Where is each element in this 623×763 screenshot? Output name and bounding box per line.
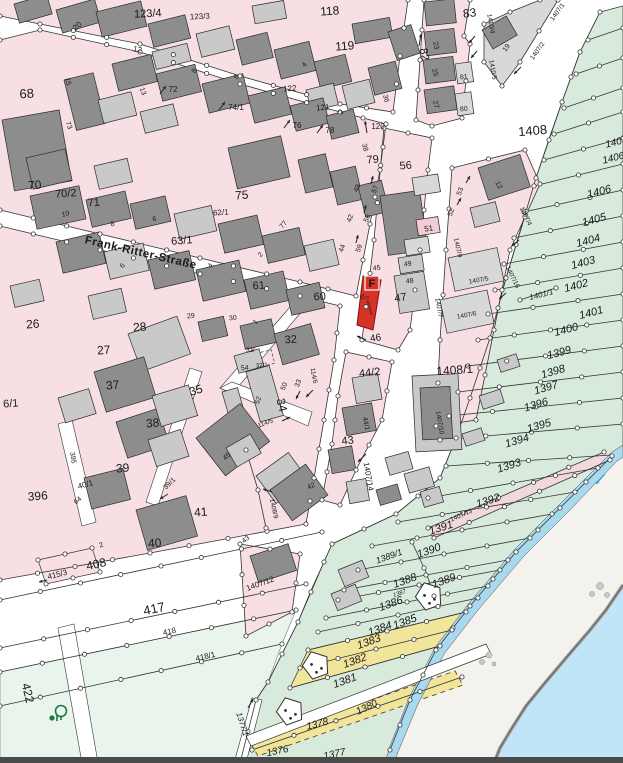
parcel-label: 30 [229, 315, 237, 323]
parcel-label: 44/2 [358, 366, 381, 380]
parcel-label: 60 [313, 291, 326, 304]
parcel-label: 32/1 [256, 362, 269, 369]
parcel-label: 119 [335, 38, 355, 53]
parcel-label: 61 [252, 280, 265, 293]
parcel-label: 62/1 [213, 207, 230, 217]
parcel-label: 29 [187, 313, 195, 321]
parcel-label: 121 [316, 102, 331, 112]
parcel-label: 45 [372, 264, 381, 272]
parcel-label: 70 [28, 178, 43, 193]
parcel-label: 68 [19, 86, 34, 102]
gravel-icon [480, 660, 485, 665]
parcel-label: 47 [394, 291, 408, 305]
parcel-label: 70/2 [55, 187, 77, 200]
parcel-label: 43 [341, 434, 354, 447]
parcel-label: 63/1 [171, 234, 193, 247]
parcel-label: 123/4 [134, 7, 162, 20]
parcel-label: 41 [194, 505, 209, 520]
parcel-label: 1408 [518, 122, 548, 139]
parcel-label: 82 [417, 47, 431, 61]
parcel-label: 40 [148, 536, 163, 551]
gravel-icon [486, 652, 492, 658]
parcel-label: 26 [26, 317, 41, 332]
parcel-label: 76 [293, 121, 302, 130]
parcel-label: 1408/1 [436, 362, 474, 379]
parcel-label: 51 [424, 223, 435, 233]
parcel-label: 71 [87, 197, 100, 210]
scan-edge [0, 757, 623, 763]
gravel-icon [605, 593, 610, 598]
parcel-label: 46 [369, 332, 382, 345]
parcel-label: 79 [366, 154, 379, 167]
parcel-label: 48 [405, 277, 414, 285]
parcel-label: 81 [460, 74, 468, 82]
parcel-label: 118 [320, 3, 340, 18]
parcel-label: 75 [235, 188, 250, 203]
parcel-label: 78 [326, 126, 335, 135]
parcel-label: 56 [399, 160, 412, 173]
parcel-label: 38 [145, 415, 160, 430]
parcel-label: 80 [460, 106, 468, 114]
gravel-icon [597, 583, 604, 590]
parcel-label: 72 [169, 85, 178, 94]
gravel-icon [590, 592, 595, 597]
parcel-label: 120 [371, 122, 385, 131]
gravel-icon [492, 662, 496, 666]
parcel-label: 6/1 [3, 397, 19, 410]
parcel-label: 123/3 [190, 11, 211, 21]
parcel-label: 39 [115, 460, 130, 475]
parcel-label: 32 [284, 334, 297, 347]
parcel-label: 31 [246, 347, 254, 355]
parcel-label: 37 [105, 377, 120, 392]
parcel-label: 27 [97, 343, 112, 358]
parcel-label: 49 [403, 260, 412, 268]
fire-station-letter: F [369, 278, 376, 290]
parcel-label: 74/1 [228, 103, 244, 112]
parcel-label: 54 [241, 365, 249, 373]
parcel-label: 83 [462, 5, 477, 20]
parcel-label: 28 [133, 320, 148, 335]
parcel-label: 122 [283, 83, 298, 93]
cadastral-map[interactable]: F Frank-Ritter-Straße 123/4123/320118119… [0, 0, 623, 763]
map-canvas: F Frank-Ritter-Straße 123/4123/320118119… [0, 0, 623, 763]
parcel-label: 396 [27, 488, 48, 503]
